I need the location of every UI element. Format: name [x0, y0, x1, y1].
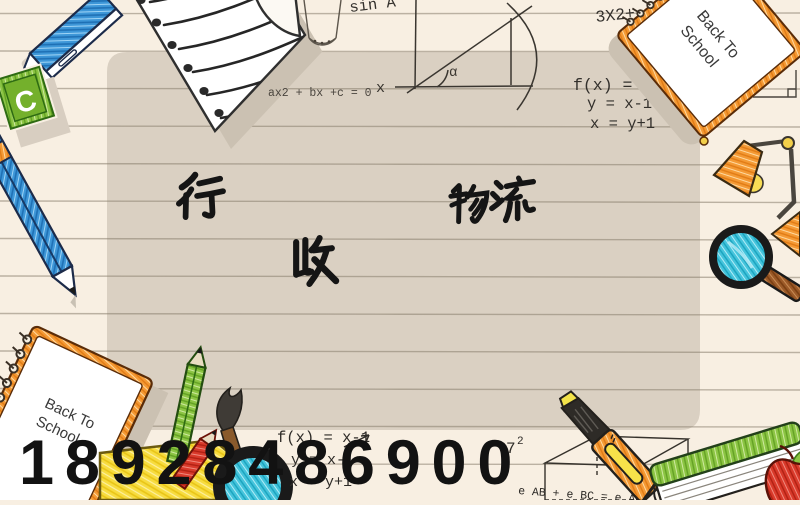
svg-text:ax2 + bx +c = 0: ax2 + bx +c = 0 — [268, 87, 372, 100]
svg-text:18928486900: 18928486900 — [19, 428, 523, 498]
svg-text:y = x-1: y = x-1 — [587, 95, 652, 113]
svg-text:α: α — [449, 65, 457, 81]
svg-text:x: x — [376, 80, 385, 97]
svg-text:x = y+1: x = y+1 — [590, 115, 655, 133]
